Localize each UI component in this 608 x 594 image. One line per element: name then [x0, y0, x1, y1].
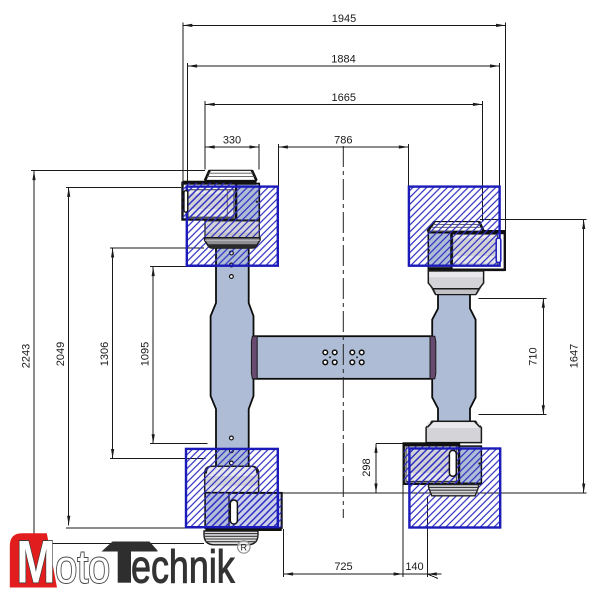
svg-text:710: 710	[528, 347, 540, 365]
svg-text:1095: 1095	[140, 342, 152, 366]
svg-text:echnik: echnik	[131, 541, 235, 592]
svg-text:330: 330	[223, 135, 241, 147]
svg-text:140: 140	[405, 561, 423, 573]
svg-text:298: 298	[361, 458, 373, 476]
svg-text:1647: 1647	[569, 344, 581, 368]
svg-text:R: R	[241, 543, 248, 553]
svg-text:2243: 2243	[21, 344, 33, 368]
svg-text:786: 786	[334, 135, 352, 147]
svg-text:1665: 1665	[332, 92, 356, 104]
svg-text:2049: 2049	[55, 342, 67, 366]
svg-text:M: M	[16, 529, 55, 594]
svg-text:1306: 1306	[99, 342, 111, 366]
svg-text:1945: 1945	[332, 13, 356, 25]
svg-text:oto: oto	[55, 542, 110, 593]
svg-text:1884: 1884	[331, 54, 355, 66]
svg-text:725: 725	[334, 561, 352, 573]
